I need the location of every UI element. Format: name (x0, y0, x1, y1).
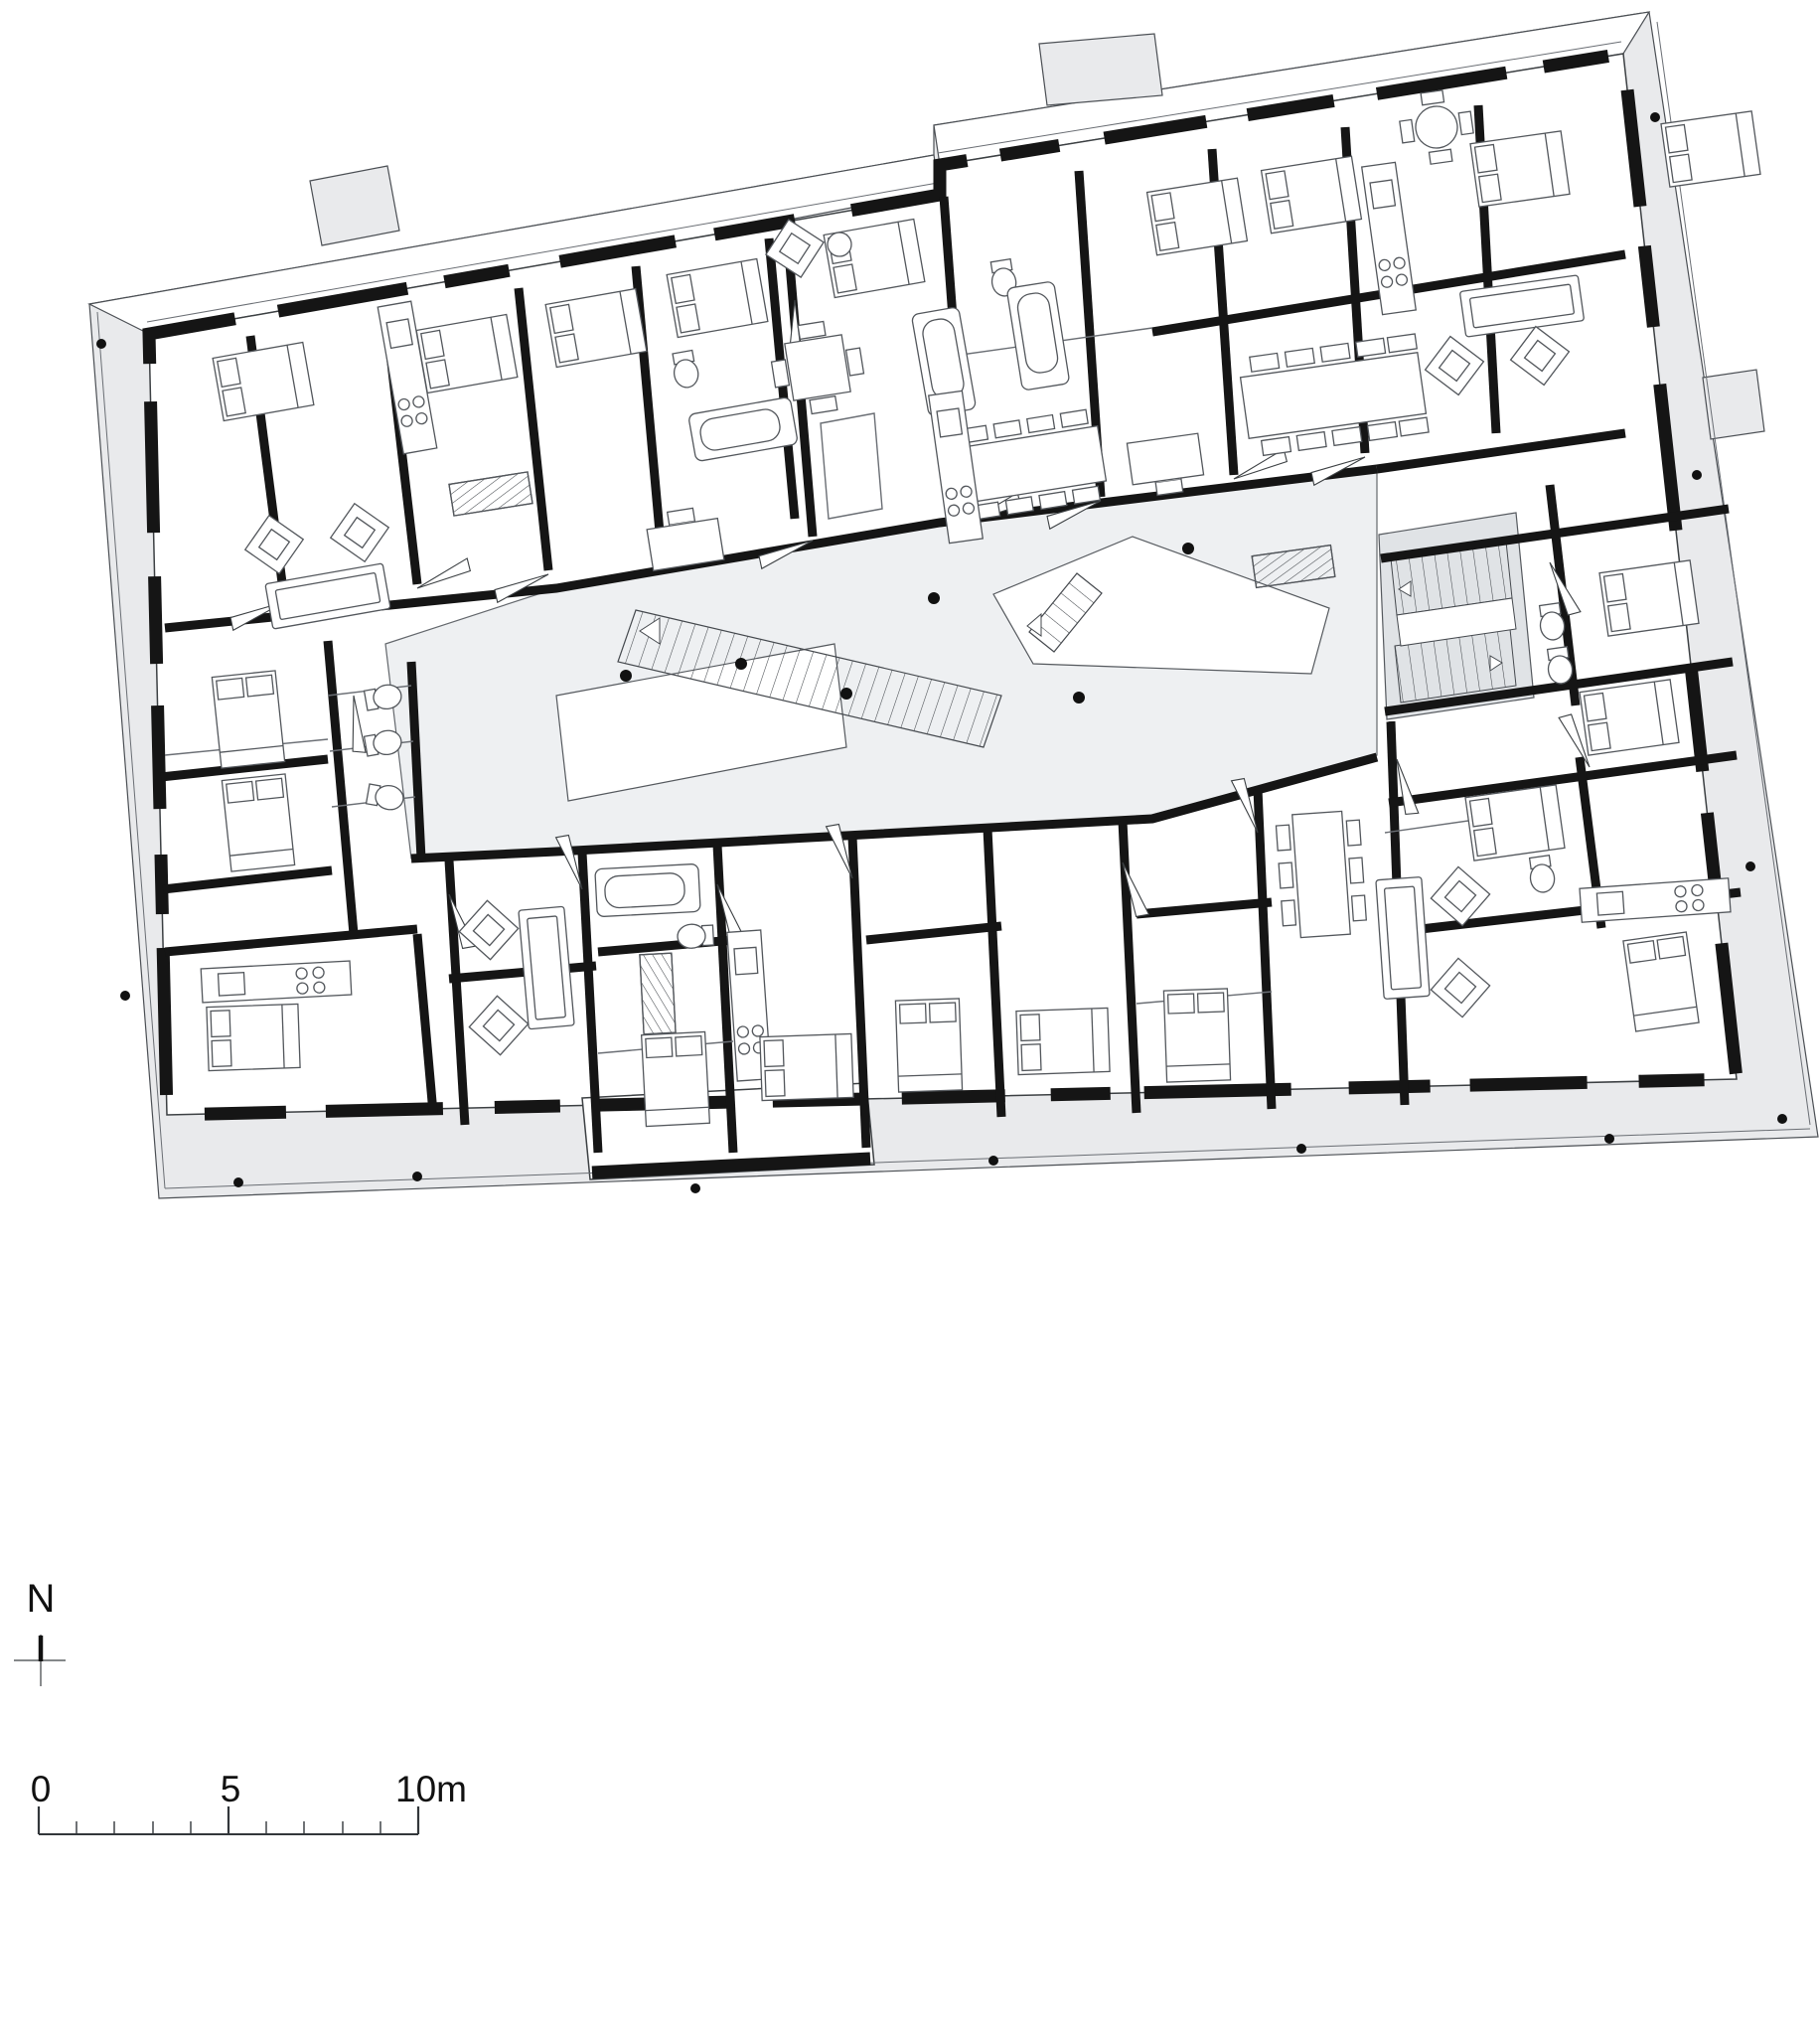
scale-label-0: 0 (31, 1769, 52, 1809)
column-dot (1650, 112, 1660, 122)
bed-icon (1163, 989, 1230, 1082)
floor-plan-page: N 0 5 10m (0, 0, 1820, 2035)
toilet-icon (677, 923, 713, 949)
column-dot (1604, 1134, 1614, 1144)
sofa-icon (1376, 877, 1430, 1000)
bed-icon (895, 999, 962, 1092)
balcony-tab-3 (1039, 34, 1162, 105)
scale-bar: 0 5 10m (31, 1769, 467, 1834)
bed-icon (1580, 680, 1679, 755)
sofa-icon (519, 906, 574, 1029)
column-dot (233, 1177, 243, 1187)
column-dot (1073, 692, 1085, 704)
bed-icon (1599, 560, 1699, 636)
north-label: N (27, 1577, 56, 1621)
bed-icon (1016, 1008, 1110, 1074)
balcony-tab-1 (310, 166, 399, 245)
column-dot (96, 339, 106, 349)
dining-table-icon (1276, 810, 1367, 939)
floor-plan-drawing: N 0 5 10m (0, 0, 1820, 2035)
bed-icon (1465, 785, 1565, 861)
column-dot (1745, 861, 1755, 871)
bed-icon (1147, 178, 1248, 255)
scale-label-10m: 10m (395, 1769, 467, 1809)
side-table-icon (828, 233, 851, 256)
bed-icon (212, 671, 284, 768)
bathtub-icon (595, 863, 700, 916)
balcony-tab-4 (1703, 370, 1764, 439)
column-dot (1182, 543, 1194, 554)
column-dot (840, 688, 852, 700)
bed-icon (642, 1031, 710, 1126)
column-dot (1296, 1144, 1306, 1154)
kitchen-counter-icon (201, 961, 352, 1003)
column-dot (735, 658, 747, 670)
bed-icon (760, 1033, 853, 1100)
scale-ticks (39, 1806, 418, 1834)
bed-icon (222, 774, 294, 871)
column-dot (928, 592, 940, 604)
column-dot (690, 1183, 700, 1193)
column-dot (1692, 470, 1702, 480)
column-dot (1777, 1114, 1787, 1124)
bed-icon (1661, 111, 1760, 187)
column-dot (620, 670, 632, 682)
column-dot (988, 1156, 998, 1166)
column-dot (120, 991, 130, 1001)
bed-icon (1262, 156, 1362, 234)
scale-label-5: 5 (221, 1769, 241, 1809)
bed-icon (1623, 932, 1699, 1031)
bed-icon (207, 1004, 300, 1070)
wardrobe-icon (640, 953, 676, 1034)
bed-icon (1470, 131, 1570, 207)
column-dot (412, 1172, 422, 1181)
north-arrow: N (14, 1577, 66, 1686)
